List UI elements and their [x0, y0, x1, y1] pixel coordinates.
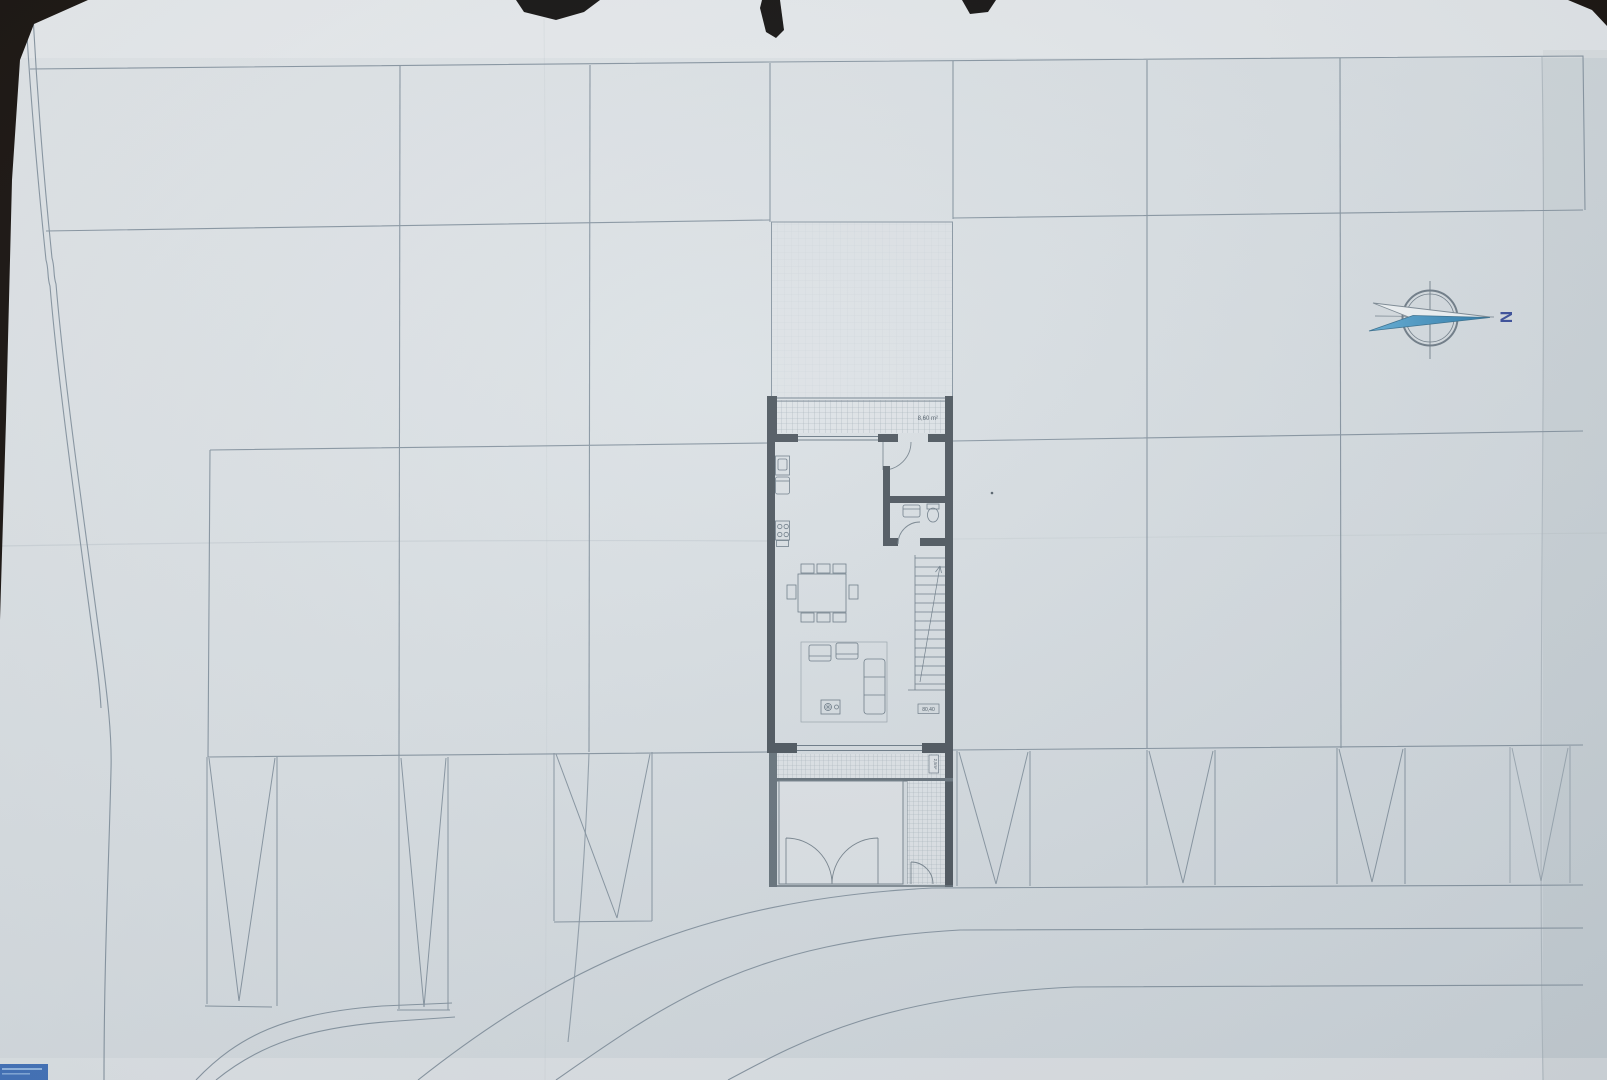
sticker-body: [0, 1064, 48, 1080]
wall-wc-bottom-seg2: [920, 538, 953, 546]
terrace: 8,60 m²: [767, 396, 953, 434]
site-plan-canvas: 8,60 m²: [0, 0, 1607, 1080]
rear-garden: [772, 222, 953, 398]
blue-sticker: [0, 1064, 48, 1080]
wall-top-seg1: [767, 434, 798, 442]
paper-bottom-edge: [0, 1058, 1607, 1080]
site-plan-photo: 8,60 m²: [0, 0, 1607, 1080]
north-label: N: [1497, 311, 1516, 323]
paper-sheet: [0, 0, 1607, 1080]
wall-left: [767, 434, 775, 753]
terrace-wall-right: [945, 396, 953, 434]
sticker-stripe-2: [2, 1073, 30, 1075]
wall-top-seg3: [928, 434, 953, 442]
living-area-label: 80,40: [922, 707, 935, 713]
walkway-tiles: [775, 754, 945, 778]
front-walkway: 2,5m²: [769, 754, 953, 782]
wall-top-seg2: [878, 434, 898, 442]
wall-bottom-seg1: [767, 743, 797, 753]
wall-wc-bottom-seg1: [883, 538, 898, 546]
wall-bottom-seg2: [922, 743, 953, 753]
garage-wall-left: [769, 753, 777, 887]
garage: [779, 781, 903, 884]
wall-wc-top: [890, 496, 953, 503]
terrace-wall-left: [767, 396, 777, 434]
ink-speck: [991, 492, 994, 495]
entry-area-label: 2,5m²: [933, 759, 938, 770]
terrace-area-label: 8,60 m²: [918, 416, 938, 422]
fold-shading: [1543, 50, 1607, 1080]
paper-top-margin: [8, 0, 1607, 58]
sticker-stripe: [2, 1068, 42, 1070]
wall-hall: [883, 466, 890, 543]
